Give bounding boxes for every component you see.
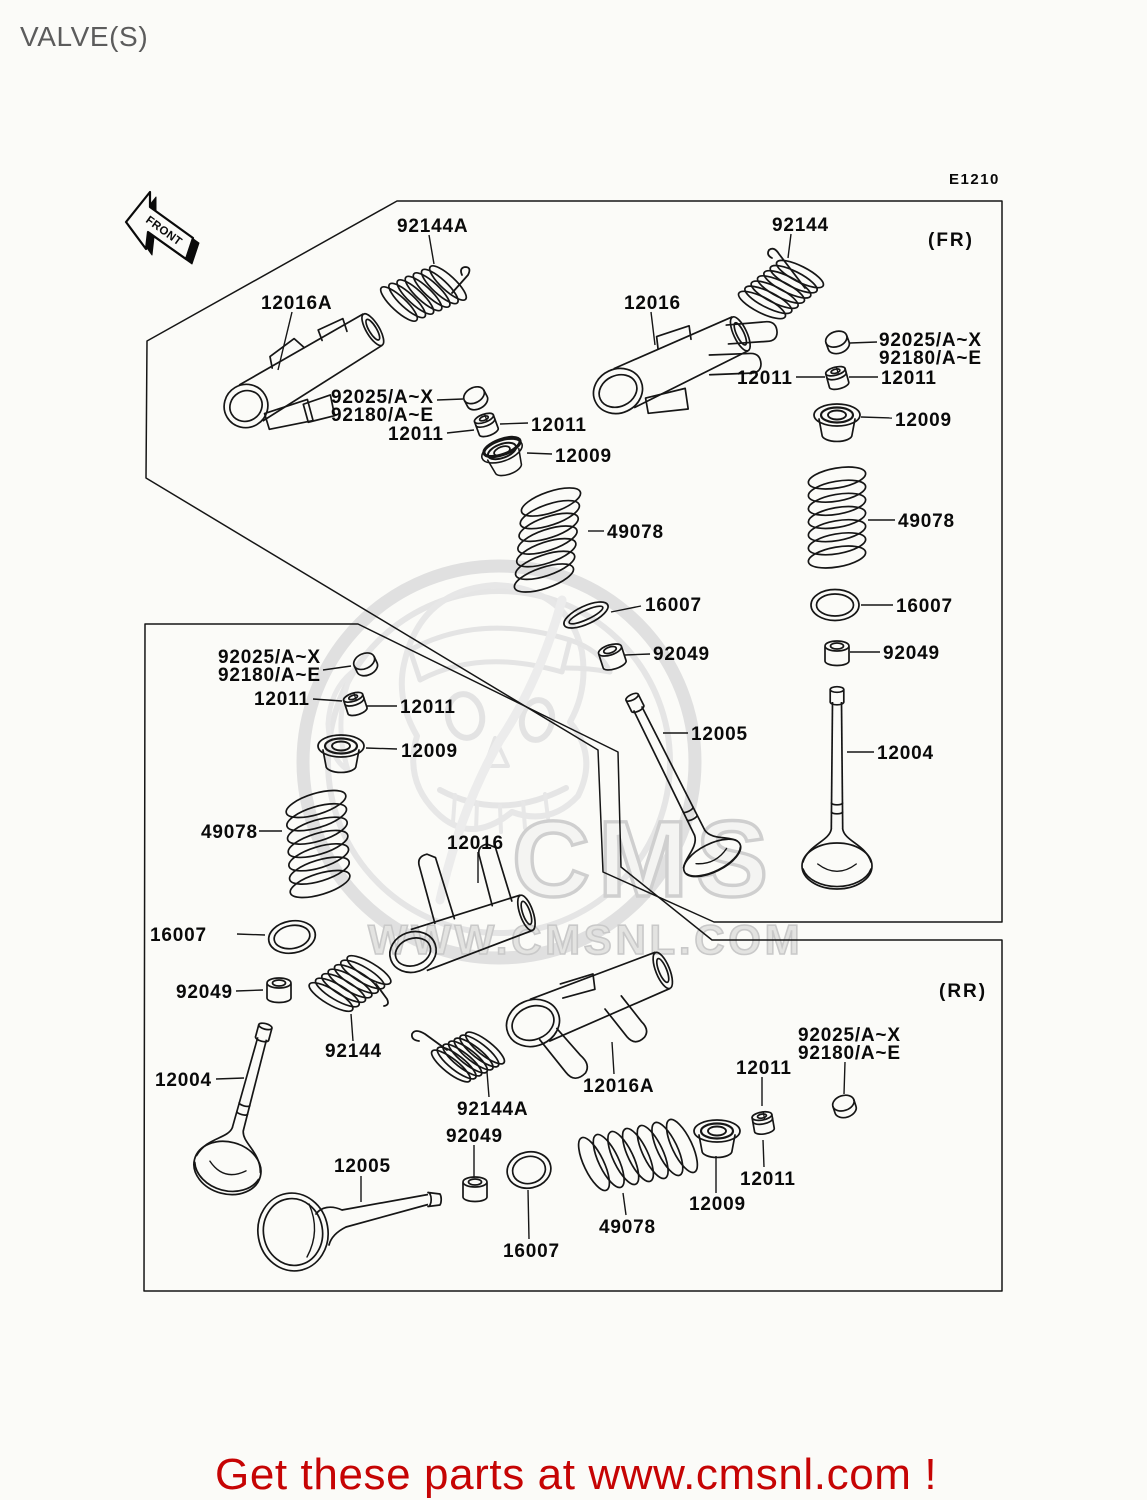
svg-text:92049: 92049	[653, 644, 710, 665]
svg-text:92049: 92049	[446, 1126, 503, 1147]
svg-text:12016A: 12016A	[261, 293, 332, 314]
svg-text:92180/A~E: 92180/A~E	[879, 348, 982, 369]
svg-text:12009: 12009	[401, 741, 458, 762]
svg-text:12009: 12009	[555, 446, 612, 467]
svg-text:12011: 12011	[736, 1058, 792, 1079]
svg-text:12016: 12016	[624, 293, 681, 314]
svg-text:92180/A~E: 92180/A~E	[331, 405, 434, 426]
svg-text:16007: 16007	[150, 925, 207, 946]
svg-text:12004: 12004	[877, 743, 934, 764]
svg-text:12011: 12011	[388, 424, 444, 445]
svg-text:92049: 92049	[176, 982, 233, 1003]
svg-text:16007: 16007	[896, 596, 953, 617]
svg-text:(RR): (RR)	[939, 981, 987, 1002]
svg-text:49078: 49078	[898, 511, 955, 532]
svg-text:Get these parts at www.cmsnl.c: Get these parts at www.cmsnl.com !	[215, 1450, 937, 1499]
svg-text:49078: 49078	[201, 822, 258, 843]
svg-text:12011: 12011	[531, 415, 587, 436]
svg-text:12005: 12005	[334, 1156, 391, 1177]
svg-text:12011: 12011	[254, 689, 310, 710]
svg-text:12011: 12011	[400, 697, 456, 718]
svg-text:12016: 12016	[447, 833, 504, 854]
svg-text:12005: 12005	[691, 724, 748, 745]
svg-text:12016A: 12016A	[583, 1076, 654, 1097]
svg-text:92049: 92049	[883, 643, 940, 664]
svg-text:92144A: 92144A	[457, 1099, 528, 1120]
svg-text:16007: 16007	[503, 1241, 560, 1262]
svg-text:92144: 92144	[772, 215, 829, 236]
svg-text:49078: 49078	[607, 522, 664, 543]
svg-text:92144A: 92144A	[397, 216, 468, 237]
svg-text:E1210: E1210	[949, 171, 1000, 188]
svg-text:VALVE(S): VALVE(S)	[20, 21, 148, 52]
svg-text:49078: 49078	[599, 1217, 656, 1238]
svg-text:(FR): (FR)	[928, 230, 974, 251]
svg-text:12011: 12011	[740, 1169, 796, 1190]
svg-text:92144: 92144	[325, 1041, 382, 1062]
svg-text:12004: 12004	[155, 1070, 212, 1091]
svg-text:12011: 12011	[737, 368, 793, 389]
svg-text:16007: 16007	[645, 595, 702, 616]
svg-text:CMS: CMS	[512, 798, 776, 919]
svg-text:92180/A~E: 92180/A~E	[218, 665, 321, 686]
svg-text:12009: 12009	[689, 1194, 746, 1215]
svg-text:12011: 12011	[881, 368, 937, 389]
svg-text:92180/A~E: 92180/A~E	[798, 1043, 901, 1064]
svg-text:12009: 12009	[895, 410, 952, 431]
